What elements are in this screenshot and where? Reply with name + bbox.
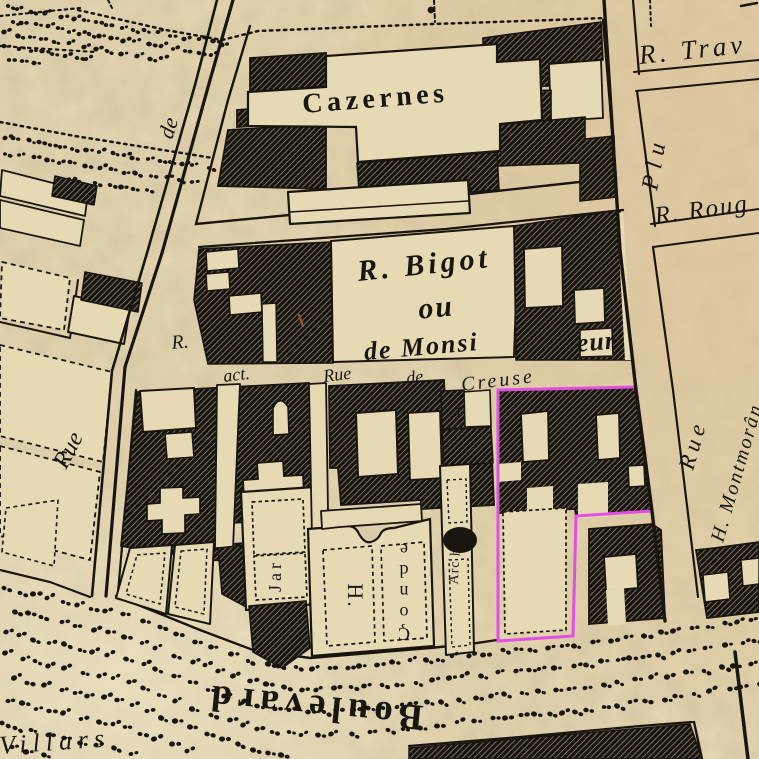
svg-text:R.: R. [170,331,190,355]
svg-text:Jar: Jar [265,559,285,592]
svg-text:Ç: Ç [398,624,410,644]
svg-text:eur: eur [576,325,618,357]
svg-text:H.: H. [343,583,368,608]
svg-text:e: e [400,540,408,560]
svg-text:n: n [400,582,409,602]
svg-text:d: d [400,561,409,581]
svg-text:o: o [400,603,409,623]
svg-text:ou: ou [417,289,456,326]
svg-text:act.: act. [222,363,251,386]
svg-text:Arc hiv: Arc hiv [447,535,465,585]
